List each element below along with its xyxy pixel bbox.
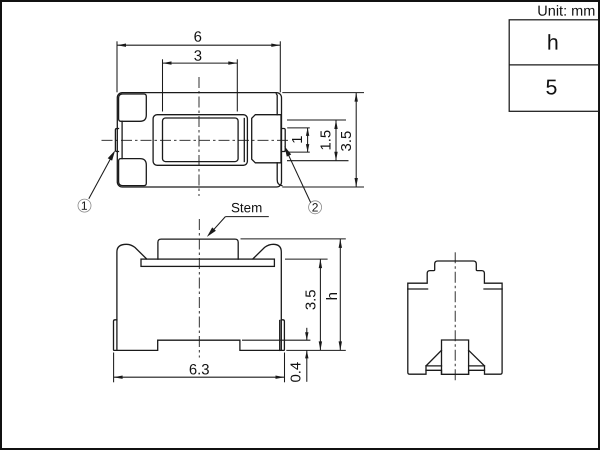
svg-text:Stem: Stem (231, 200, 262, 215)
svg-text:h: h (325, 292, 341, 300)
svg-text:3.5: 3.5 (339, 131, 355, 152)
svg-text:3.5: 3.5 (304, 289, 320, 310)
svg-text:1: 1 (81, 199, 88, 213)
svg-text:6.3: 6.3 (189, 362, 210, 378)
svg-text:5: 5 (546, 75, 558, 99)
svg-text:6: 6 (194, 30, 202, 46)
svg-text:3: 3 (194, 49, 202, 65)
svg-text:Unit: mm: Unit: mm (537, 4, 595, 20)
svg-text:1.5: 1.5 (319, 130, 335, 151)
svg-text:0.4: 0.4 (288, 362, 304, 383)
svg-text:h: h (547, 31, 559, 55)
svg-text:1: 1 (290, 135, 306, 143)
svg-text:2: 2 (312, 200, 319, 214)
